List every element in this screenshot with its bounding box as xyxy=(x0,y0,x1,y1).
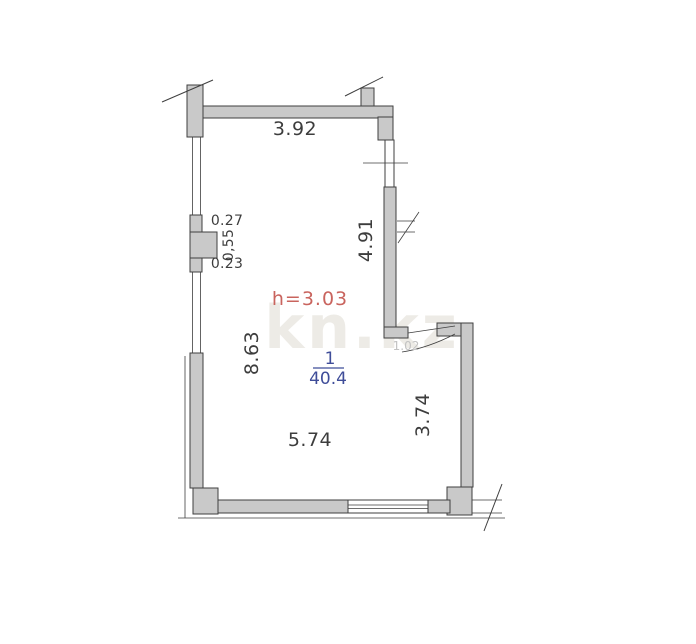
pilaster-block xyxy=(190,232,217,258)
dim-bottom-wall: 5.74 xyxy=(288,429,332,451)
bottom-wall xyxy=(218,500,348,513)
room-area: 40.4 xyxy=(309,369,347,389)
top-right-wall-stub xyxy=(361,88,374,106)
left-window-lower-lines xyxy=(193,272,201,353)
right-upper-wall xyxy=(384,187,396,327)
bottom-window xyxy=(348,500,428,513)
dim-pilaster-top: 0.27 xyxy=(211,213,243,229)
bottom-left-column xyxy=(193,488,218,514)
floor-plan-drawing: kn.kz 3.92 0.27 0,55 0.23 4.91 8.63 5.74 xyxy=(0,0,696,644)
floor-plan-page: kn.kz 3.92 0.27 0,55 0.23 4.91 8.63 5.74 xyxy=(0,0,696,644)
dim-pilaster-bottom: 0.23 xyxy=(211,256,243,272)
dim-left-wall: 8.63 xyxy=(241,331,263,375)
dim-door-width: 1.02 xyxy=(393,339,420,353)
right-lower-wall xyxy=(461,323,473,487)
top-wall xyxy=(200,106,393,118)
break-mark-bottom-right xyxy=(484,484,502,531)
left-window-upper-lines xyxy=(193,137,201,215)
room-number: 1 xyxy=(325,349,336,369)
ceiling-height-label: h=3.03 xyxy=(272,288,348,310)
right-window xyxy=(385,140,394,187)
top-right-corner-wall xyxy=(378,117,393,140)
dim-right-lower-wall: 3.74 xyxy=(412,393,434,437)
dim-top-wall: 3.92 xyxy=(273,118,317,140)
top-left-column xyxy=(187,85,203,137)
left-wall xyxy=(190,353,203,488)
dim-right-upper-wall: 4.91 xyxy=(355,218,377,262)
bottom-right-column xyxy=(447,487,472,515)
bottom-right-continuation-lines xyxy=(472,500,502,513)
right-upper-wall-foot xyxy=(384,327,408,338)
break-mark-right-wall xyxy=(397,212,419,243)
bottom-wall-stub xyxy=(428,500,450,513)
